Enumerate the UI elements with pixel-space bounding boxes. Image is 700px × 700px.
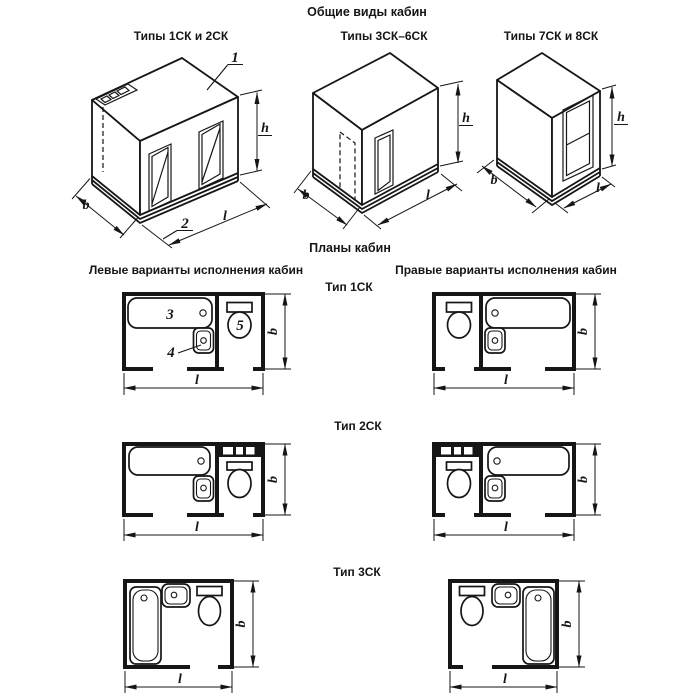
washbasin: [485, 476, 505, 501]
dim-l-label: l: [503, 672, 507, 687]
dim-b: b: [265, 294, 291, 369]
cistern: [227, 303, 252, 313]
toilet-bowl: [228, 470, 251, 498]
dim-b-label: b: [560, 621, 575, 628]
dim-b-label: b: [576, 328, 591, 335]
iso-label-1sk-2sk: Типы 1СК и 2СК: [134, 29, 229, 43]
dim-b-label: b: [266, 476, 281, 483]
dim-l-label: l: [596, 181, 600, 196]
iso-label-3sk-6sk: Типы 3СК–6СК: [340, 29, 428, 43]
callout-toilet: 5: [236, 318, 244, 334]
dim-l-label: l: [178, 672, 182, 687]
toilet: [197, 587, 222, 626]
right-column-label: Правые варианты исполнения кабин: [395, 263, 617, 277]
dim-l: l: [450, 671, 557, 693]
dim-b-label: b: [491, 173, 498, 188]
bathtub: [523, 587, 554, 664]
dim-b-label: b: [303, 188, 310, 203]
dim-b-label: b: [83, 198, 90, 213]
vent-block: [219, 442, 263, 457]
dim-b: b: [559, 581, 585, 667]
vent-block: [435, 442, 481, 457]
iso-view-types-3sk-6sk: h b l: [294, 53, 473, 229]
dim-l-label: l: [504, 520, 508, 535]
dim-b: b: [576, 444, 601, 515]
dim-h: h: [240, 90, 272, 175]
callout-1: 1: [231, 50, 239, 66]
dim-l-label: l: [195, 520, 199, 535]
iso-label-7sk-8sk: Типы 7СК и 8СК: [504, 29, 599, 43]
dim-b: b: [234, 581, 259, 667]
page-title: Общие виды кабин: [307, 5, 427, 19]
plan-3sk-right: b l: [448, 581, 585, 693]
dim-l-label: l: [223, 209, 227, 224]
dim-b-label: b: [576, 476, 591, 483]
row-label-2sk: Тип 2СК: [334, 419, 382, 433]
toilet-bowl: [448, 312, 471, 338]
dim-h: h: [440, 81, 473, 166]
toilet: [460, 587, 485, 626]
plan-2sk-right: b l: [432, 442, 601, 541]
plan-3sk-left: b l: [123, 581, 259, 693]
dim-l-label: l: [504, 373, 508, 388]
callout-washbasin: 4: [166, 345, 175, 361]
plan-1sk-left: 3 4 5 b l: [122, 294, 291, 395]
washbasin: [194, 328, 214, 353]
dim-l-label: l: [195, 373, 199, 388]
dim-l: l: [434, 519, 574, 541]
dim-b-label: b: [234, 621, 249, 628]
callout-floor: 2: [163, 216, 193, 239]
callout-ceiling: 1: [207, 50, 243, 90]
washbasin: [492, 584, 520, 607]
dim-b: b: [265, 444, 291, 515]
callout-bathtub: 3: [165, 307, 174, 323]
dim-h-label: h: [462, 111, 470, 126]
cistern: [460, 587, 485, 596]
dim-h: h: [602, 85, 628, 169]
dim-l: l: [124, 519, 263, 541]
row-label-1sk: Тип 1СК: [325, 280, 373, 294]
dim-h-label: h: [617, 110, 625, 125]
toilet-bowl: [199, 597, 221, 626]
bathtub: [486, 298, 570, 328]
toilet: [447, 303, 472, 339]
dim-b-label: b: [266, 328, 281, 335]
technical-drawing-page: Общие виды кабин Типы 1СК и 2СК Типы 3СК…: [0, 0, 700, 700]
bathtub: [129, 447, 210, 475]
iso-view-types-7sk-8sk: h b l: [477, 53, 628, 213]
washbasin: [162, 584, 190, 607]
bathtub: [488, 447, 569, 475]
cabin-box: [497, 53, 600, 197]
cabin-box: [92, 58, 238, 215]
callout-2: 2: [180, 216, 189, 232]
iso-view-types-1sk-2sk: 1 2 h b l: [72, 50, 272, 248]
cistern: [447, 303, 472, 313]
dim-l: l: [124, 373, 263, 395]
dim-l: l: [434, 373, 574, 395]
washbasin: [194, 476, 214, 501]
washbasin: [485, 328, 505, 353]
left-column-label: Левые варианты исполнения кабин: [89, 263, 303, 277]
cistern: [197, 587, 222, 596]
dim-b: b: [576, 294, 601, 369]
toilet-bowl: [448, 470, 471, 498]
toilet: [227, 462, 252, 498]
toilet-bowl: [461, 597, 483, 626]
toilet: [447, 462, 472, 498]
dim-h-label: h: [261, 121, 269, 136]
dim-l: l: [125, 671, 232, 693]
plan-1sk-right: b l: [432, 294, 601, 395]
drawing-canvas: Общие виды кабин Типы 1СК и 2СК Типы 3СК…: [0, 0, 700, 700]
row-label-3sk: Тип 3СК: [333, 565, 381, 579]
plans-title: Планы кабин: [309, 241, 391, 255]
bathtub: [130, 587, 161, 664]
dim-l-label: l: [426, 188, 430, 203]
plan-2sk-left: b l: [122, 442, 291, 541]
